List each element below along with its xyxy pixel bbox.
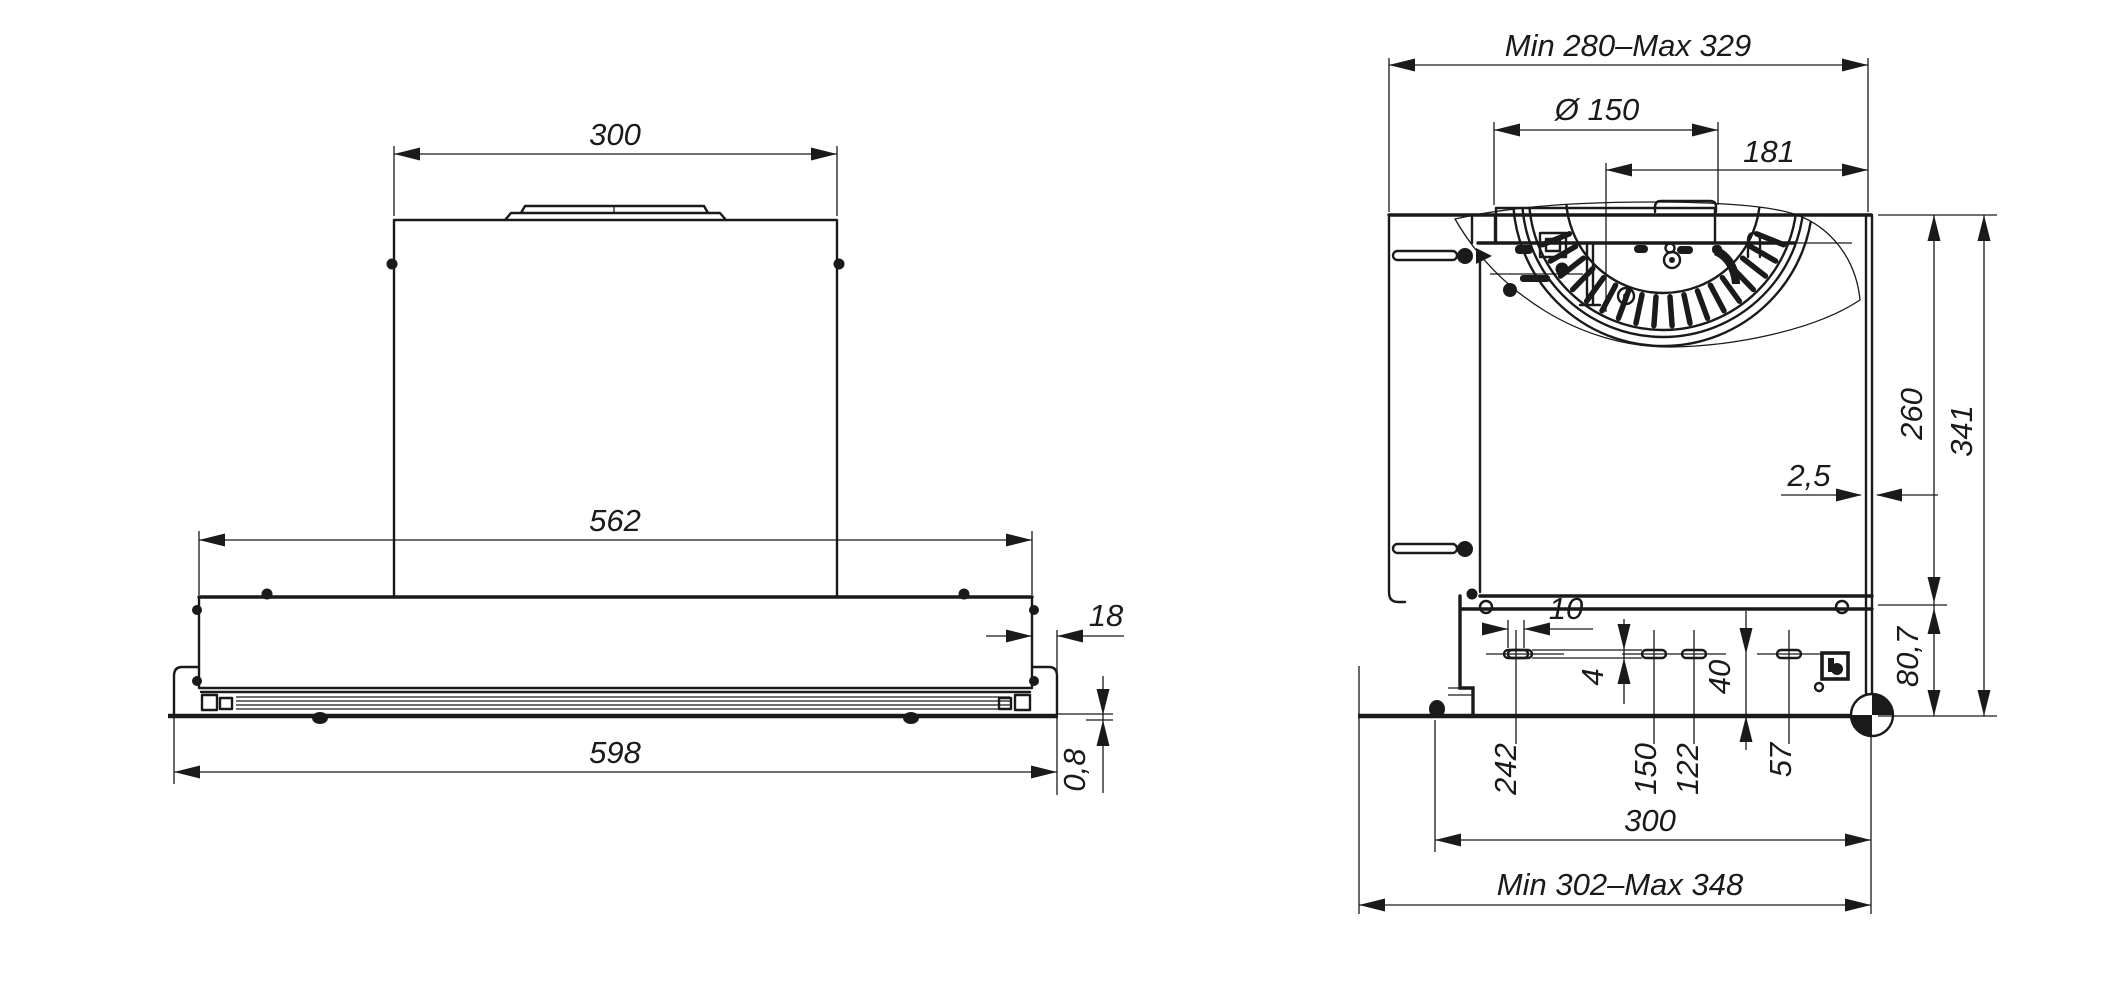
dim-slot-pos-122: 122 xyxy=(1670,743,1705,795)
dim-slot-pos-242: 242 xyxy=(1488,743,1523,796)
back-panel xyxy=(1866,215,1872,716)
mounting-slots xyxy=(1486,630,1821,744)
keyhole-icon xyxy=(1815,653,1848,691)
dim-chimney-width: 300 xyxy=(589,117,641,152)
dim-slot-length: 10 xyxy=(1549,591,1583,626)
screw-hole xyxy=(1836,601,1848,613)
lower-front-profile xyxy=(1460,596,1473,714)
side-view: Min 280–Max 329 Ø 150 181 260 341 2,5 80… xyxy=(1358,28,1997,914)
front-foot xyxy=(1429,700,1445,718)
dim-visor-side-offset: 18 xyxy=(1089,598,1124,633)
center-of-gravity-icon xyxy=(1851,694,1893,736)
dim-bottom-depth-range: Min 302–Max 348 xyxy=(1497,867,1744,902)
dim-body-height: 260 xyxy=(1894,388,1929,441)
dim-slot-pos-150: 150 xyxy=(1628,743,1663,795)
mounting-pin xyxy=(1393,544,1457,553)
cooker-hood-dimension-drawing: 300 562 598 18 0,8 xyxy=(0,0,2112,1001)
dim-slot-to-bottom: 40 xyxy=(1702,660,1737,694)
dim-slot-width: 4 xyxy=(1575,668,1610,685)
dim-total-height: 341 xyxy=(1944,405,1979,457)
body-bottom xyxy=(1462,596,1872,609)
dim-body-width: 562 xyxy=(589,503,641,538)
dim-duct-diameter: Ø 150 xyxy=(1554,92,1639,127)
front-view: 300 562 598 18 0,8 xyxy=(168,117,1124,795)
dim-slot-pos-57: 57 xyxy=(1763,741,1798,777)
corner-clip xyxy=(1476,248,1492,264)
dim-bottom-depth: 300 xyxy=(1624,803,1676,838)
screw-hole xyxy=(1480,601,1492,613)
front-view-geometry xyxy=(168,206,1058,724)
visor-end-caps xyxy=(174,667,1057,714)
mounting-pin xyxy=(1393,251,1457,260)
body-outline xyxy=(199,597,1032,692)
dim-back-panel-gap: 2,5 xyxy=(1786,458,1831,493)
technical-drawing-page: 300 562 598 18 0,8 xyxy=(0,0,2112,1001)
dim-overall-width: 598 xyxy=(589,735,641,770)
fan-wheel xyxy=(1513,46,1813,346)
dim-top-depth-range: Min 280–Max 329 xyxy=(1505,28,1751,63)
dim-bottom-plate-thickness: 0,8 xyxy=(1057,748,1092,792)
dim-duct-axis-to-back: 181 xyxy=(1743,134,1795,169)
foot-glide xyxy=(903,712,919,724)
foot-glide xyxy=(312,712,328,724)
chimney-top-cap xyxy=(505,206,726,220)
grille-lines xyxy=(236,697,1010,709)
motor-bracket xyxy=(1714,247,1740,284)
dim-bottom-section-height: 80,7 xyxy=(1890,625,1925,687)
